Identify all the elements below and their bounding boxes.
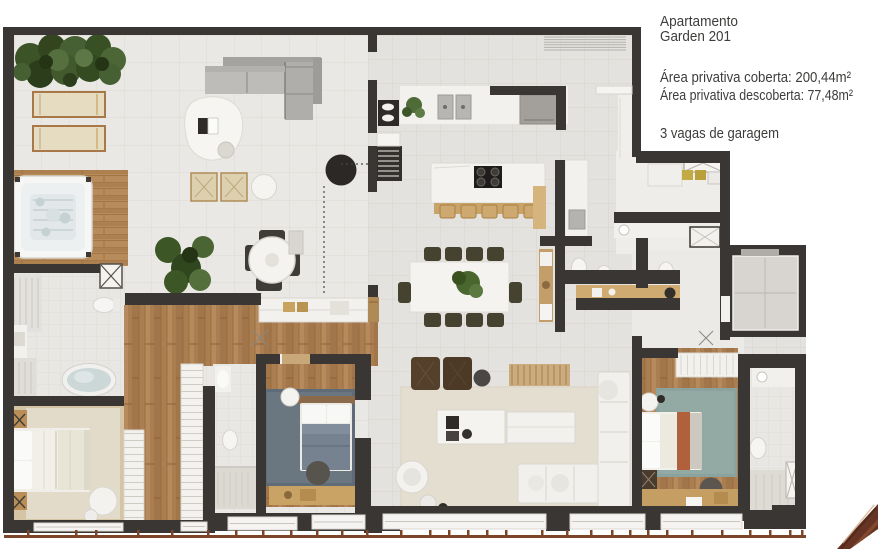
svg-text:Garden 201: Garden 201 bbox=[660, 28, 731, 45]
svg-text:Área privativa descoberta: 77,: Área privativa descoberta: 77,48m² bbox=[660, 87, 853, 104]
svg-text:Área privativa coberta: 200,44: Área privativa coberta: 200,44m² bbox=[660, 69, 851, 86]
svg-text:3 vagas de garagem: 3 vagas de garagem bbox=[660, 125, 779, 142]
